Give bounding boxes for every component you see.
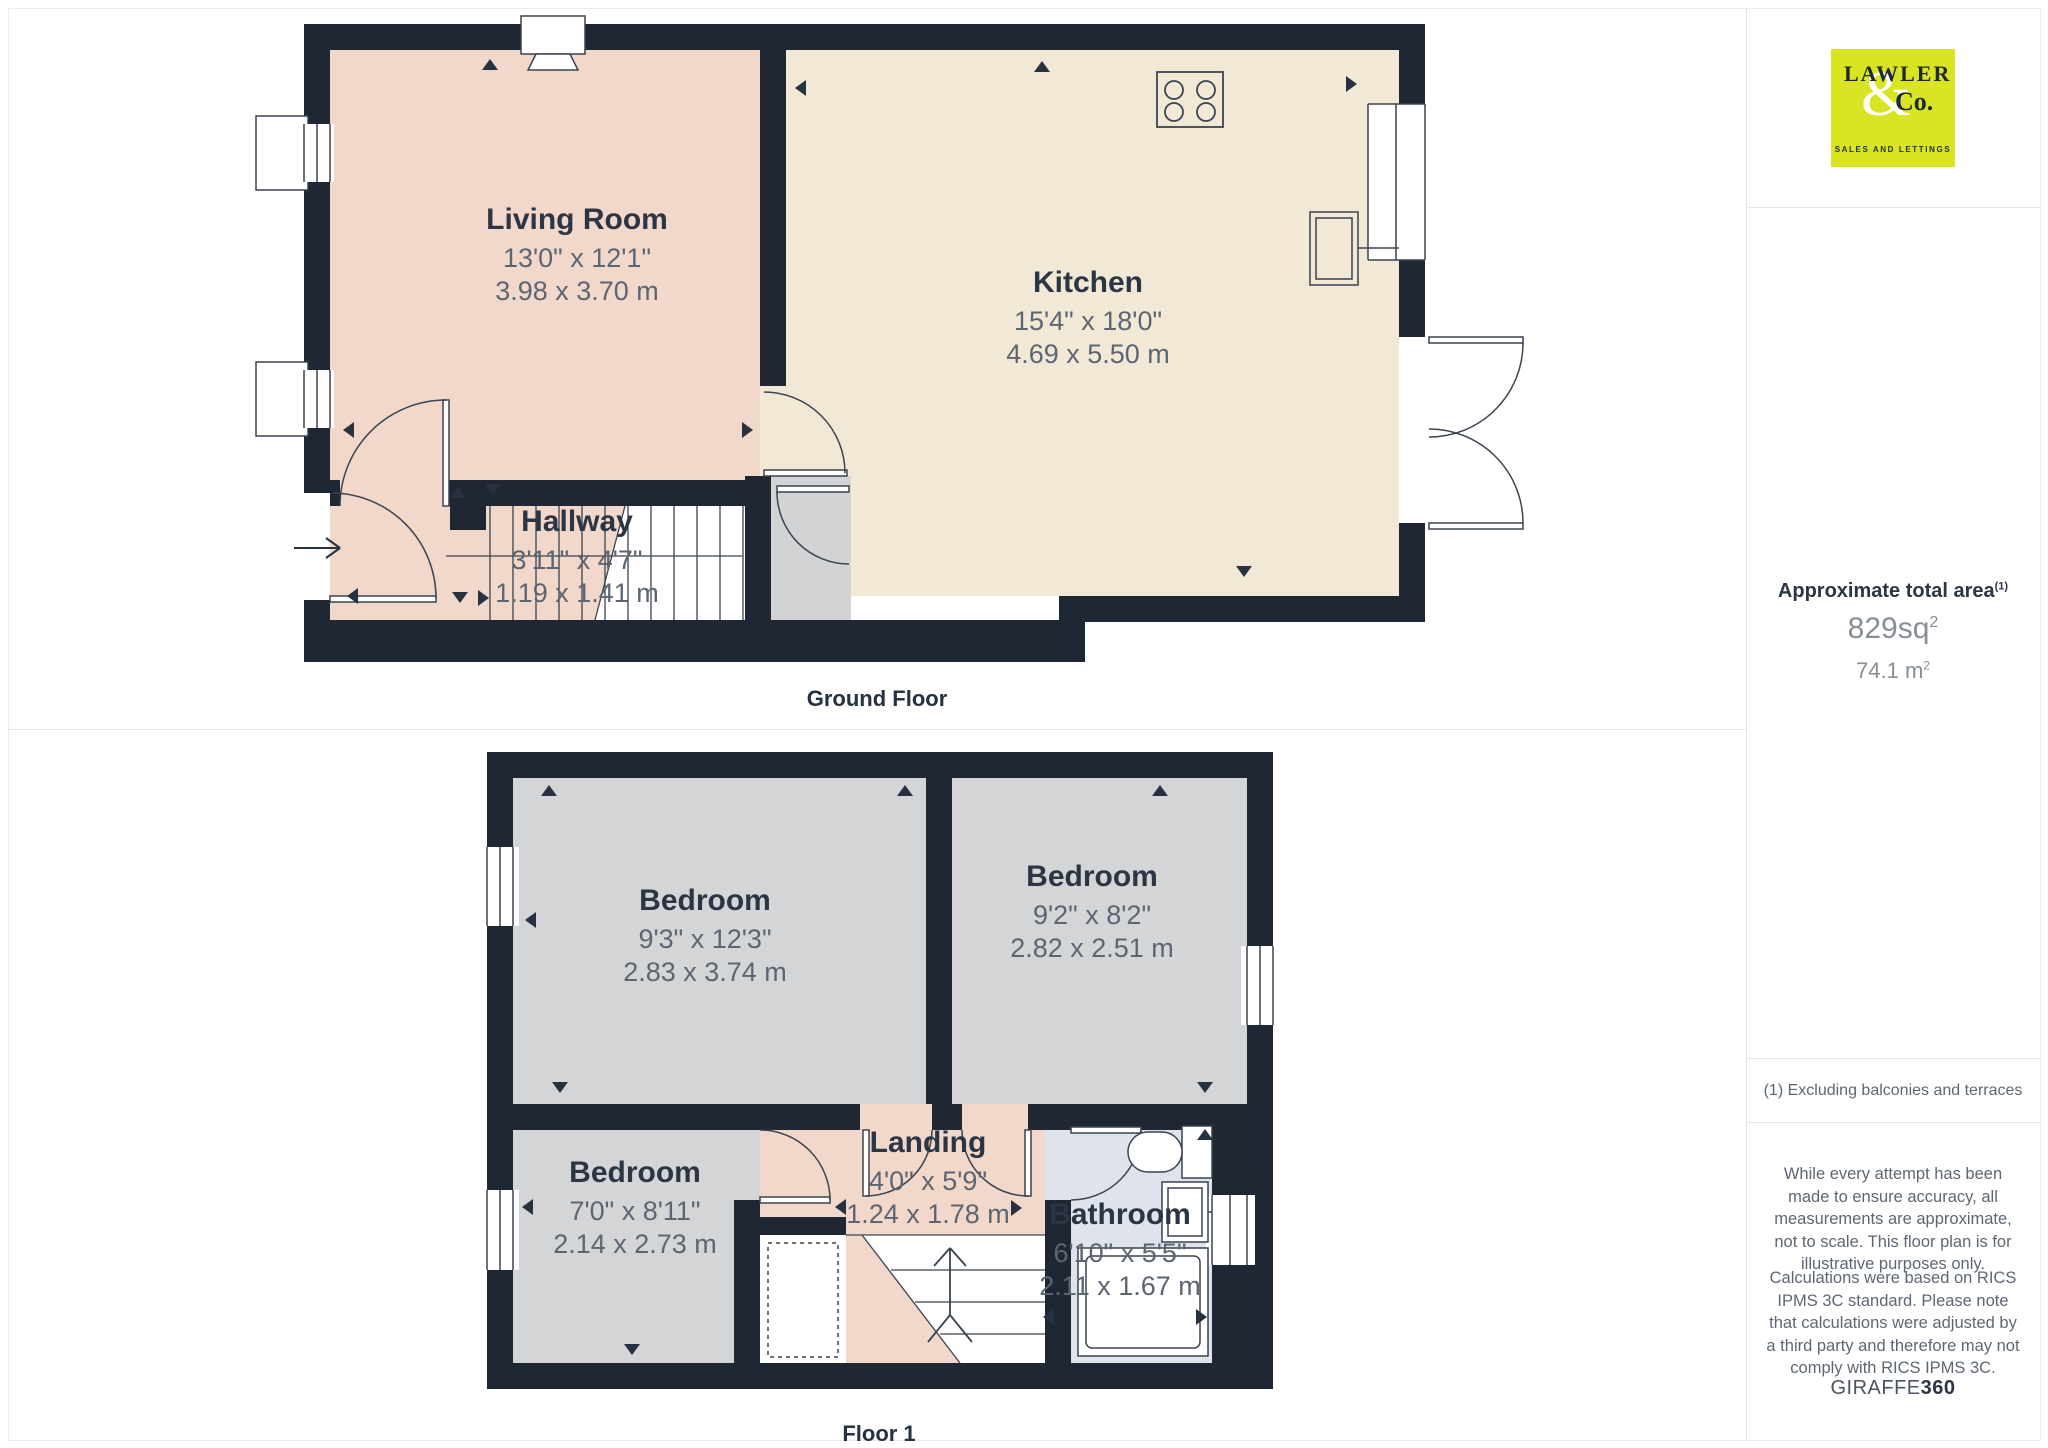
- logo-co: Co.: [1895, 87, 1933, 117]
- room-label-bedroom-2: Bedroom 9'2" x 8'2" 2.82 x 2.51 m: [1010, 862, 1174, 965]
- room-label-bedroom-3: Bedroom 7'0" x 8'11" 2.14 x 2.73 m: [553, 1158, 717, 1261]
- first-floor-caption: Floor 1: [842, 1421, 915, 1447]
- total-area-block: Approximate total area(1) 829sq2 74.1 m2: [1746, 580, 2040, 684]
- room-label-living-room: Living Room 13'0" x 12'1" 3.98 x 3.70 m: [486, 205, 668, 308]
- ground-floor-plan: [0, 0, 1746, 730]
- info-sidebar: & LAWLER Co. SALES AND LETTINGS Approxim…: [1746, 0, 2040, 1448]
- total-area-title: Approximate total area(1): [1746, 580, 2040, 603]
- giraffe360-brand: GIRAFFE360: [1746, 1377, 2040, 1400]
- bedroom3-window-icon: [481, 1190, 519, 1270]
- bathroom-window-icon: [1206, 1195, 1255, 1265]
- sidebar-divider-footnote-bottom: [1746, 1122, 2040, 1123]
- total-area-metric: 74.1 m2: [1746, 658, 2040, 684]
- agency-logo: & LAWLER Co. SALES AND LETTINGS: [1831, 49, 1955, 167]
- kitchen-window-icon: [1368, 104, 1425, 260]
- sidebar-divider-logo: [1746, 207, 2040, 208]
- bedroom2-window-icon: [1241, 946, 1279, 1025]
- first-floor-plan: [0, 730, 1746, 1448]
- room-label-kitchen: Kitchen 15'4" x 18'0" 4.69 x 5.50 m: [1006, 268, 1170, 371]
- disclaimer-rics: Calculations were based on RICS IPMS 3C …: [1763, 1267, 2023, 1380]
- room-label-hallway: Hallway 3'11" x 4'7" 1.19 x 1.41 m: [495, 507, 659, 610]
- sidebar-divider-footnote-top: [1746, 1058, 2040, 1059]
- room-label-bathroom: Bathroom 6'10" x 5'5" 2.11 x 1.67 m: [1039, 1200, 1201, 1303]
- logo-word: LAWLER: [1844, 61, 1951, 87]
- total-area-imperial: 829sq2: [1746, 612, 2040, 646]
- ground-floor-caption: Ground Floor: [807, 686, 948, 712]
- logo-tagline: SALES AND LETTINGS: [1831, 145, 1955, 154]
- floorplan-page: Living Room 13'0" x 12'1" 3.98 x 3.70 m …: [0, 0, 2048, 1448]
- room-label-landing: Landing 4'0" x 5'9" 1.24 x 1.78 m: [846, 1128, 1010, 1231]
- cupboard-dashed: [768, 1243, 838, 1357]
- area-footnote: (1) Excluding balconies and terraces: [1746, 1082, 2040, 1100]
- toilet-icon: [1128, 1126, 1212, 1178]
- bedroom1-window-icon: [481, 847, 519, 926]
- room-label-bedroom-1: Bedroom 9'3" x 12'3" 2.83 x 3.74 m: [623, 886, 787, 989]
- disclaimer-accuracy: While every attempt has been made to ens…: [1763, 1163, 2023, 1276]
